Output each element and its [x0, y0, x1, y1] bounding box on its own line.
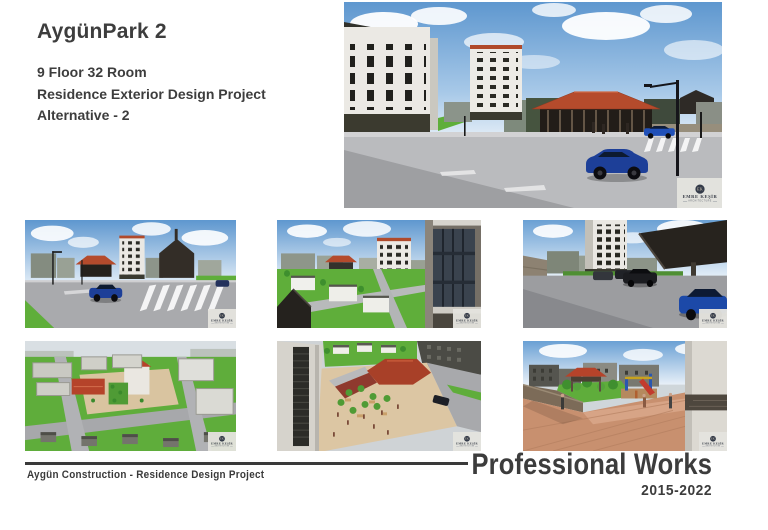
architect-watermark: EK EMRE KEŞİR ARCHITECTURE — [677, 178, 722, 208]
architect-watermark: EK EMRE KEŞİR ARCHITECTURE — [699, 309, 727, 328]
footer-series-title: Professional Works — [471, 448, 712, 482]
hero-render-image — [344, 2, 722, 208]
subtitle-line-2: Residence Exterior Design Project — [37, 84, 266, 106]
thumb-render-1: EK EMRE KEŞİR ARCHITECTURE — [25, 220, 236, 328]
ek-monogram-circle-icon: EK — [219, 313, 225, 319]
ek-monogram-circle-icon: EK — [464, 436, 470, 442]
architect-watermark: EK EMRE KEŞİR ARCHITECTURE — [453, 309, 481, 328]
architect-watermark: EK EMRE KEŞİR ARCHITECTURE — [208, 309, 236, 328]
subtitle-line-3: Alternative - 2 — [37, 105, 266, 127]
watermark-subtitle: ARCHITECTURE — [683, 199, 717, 202]
watermark-name: EMRE KEŞİR — [682, 194, 717, 199]
ek-monogram-circle-icon: EK — [710, 313, 716, 319]
page-title: AygünPark 2 — [37, 20, 167, 44]
hero-render: EK EMRE KEŞİR ARCHITECTURE — [344, 2, 722, 208]
thumb-render-3-image — [523, 220, 727, 328]
watermark-subtitle: ARCHITECTURE — [456, 445, 477, 447]
thumb-render-5: EK EMRE KEŞİR ARCHITECTURE — [277, 341, 481, 451]
thumb-render-4-image — [25, 341, 236, 451]
footer-years: 2015-2022 — [641, 482, 712, 499]
ek-monogram-circle-icon: EK — [695, 184, 704, 193]
portfolio-slide: AygünPark 2 9 Floor 32 Room Residence Ex… — [0, 0, 768, 530]
thumb-render-6: EK EMRE KEŞİR ARCHITECTURE — [523, 341, 727, 451]
watermark-subtitle: ARCHITECTURE — [211, 445, 232, 447]
watermark-subtitle: ARCHITECTURE — [456, 322, 477, 324]
thumb-render-4: EK EMRE KEŞİR ARCHITECTURE — [25, 341, 236, 451]
watermark-subtitle: ARCHITECTURE — [702, 322, 723, 324]
architect-watermark: EK EMRE KEŞİR ARCHITECTURE — [208, 432, 236, 451]
thumb-render-1-image — [25, 220, 236, 328]
thumb-render-2-image — [277, 220, 481, 328]
thumb-render-3: EK EMRE KEŞİR ARCHITECTURE — [523, 220, 727, 328]
watermark-subtitle: ARCHITECTURE — [702, 445, 723, 447]
ek-monogram-circle-icon: EK — [464, 313, 470, 319]
project-subtitle: 9 Floor 32 Room Residence Exterior Desig… — [37, 62, 266, 127]
thumb-render-2: EK EMRE KEŞİR ARCHITECTURE — [277, 220, 481, 328]
thumb-render-5-image — [277, 341, 481, 451]
ek-monogram-circle-icon: EK — [219, 436, 225, 442]
footer-caption: Aygün Construction - Residence Design Pr… — [27, 469, 264, 481]
thumb-render-6-image — [523, 341, 727, 451]
footer-divider-line — [25, 462, 468, 465]
ek-monogram-circle-icon: EK — [710, 436, 716, 442]
subtitle-line-1: 9 Floor 32 Room — [37, 62, 266, 84]
watermark-subtitle: ARCHITECTURE — [211, 322, 232, 324]
